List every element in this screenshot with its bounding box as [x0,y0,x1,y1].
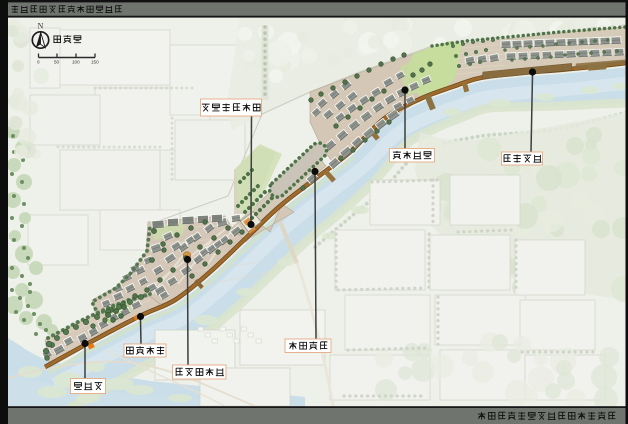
svg-text:0: 0 [37,60,40,65]
svg-text:100: 100 [72,60,80,65]
svg-text:150: 150 [91,60,99,65]
svg-text:50: 50 [54,60,60,65]
svg-text:N: N [38,22,44,31]
